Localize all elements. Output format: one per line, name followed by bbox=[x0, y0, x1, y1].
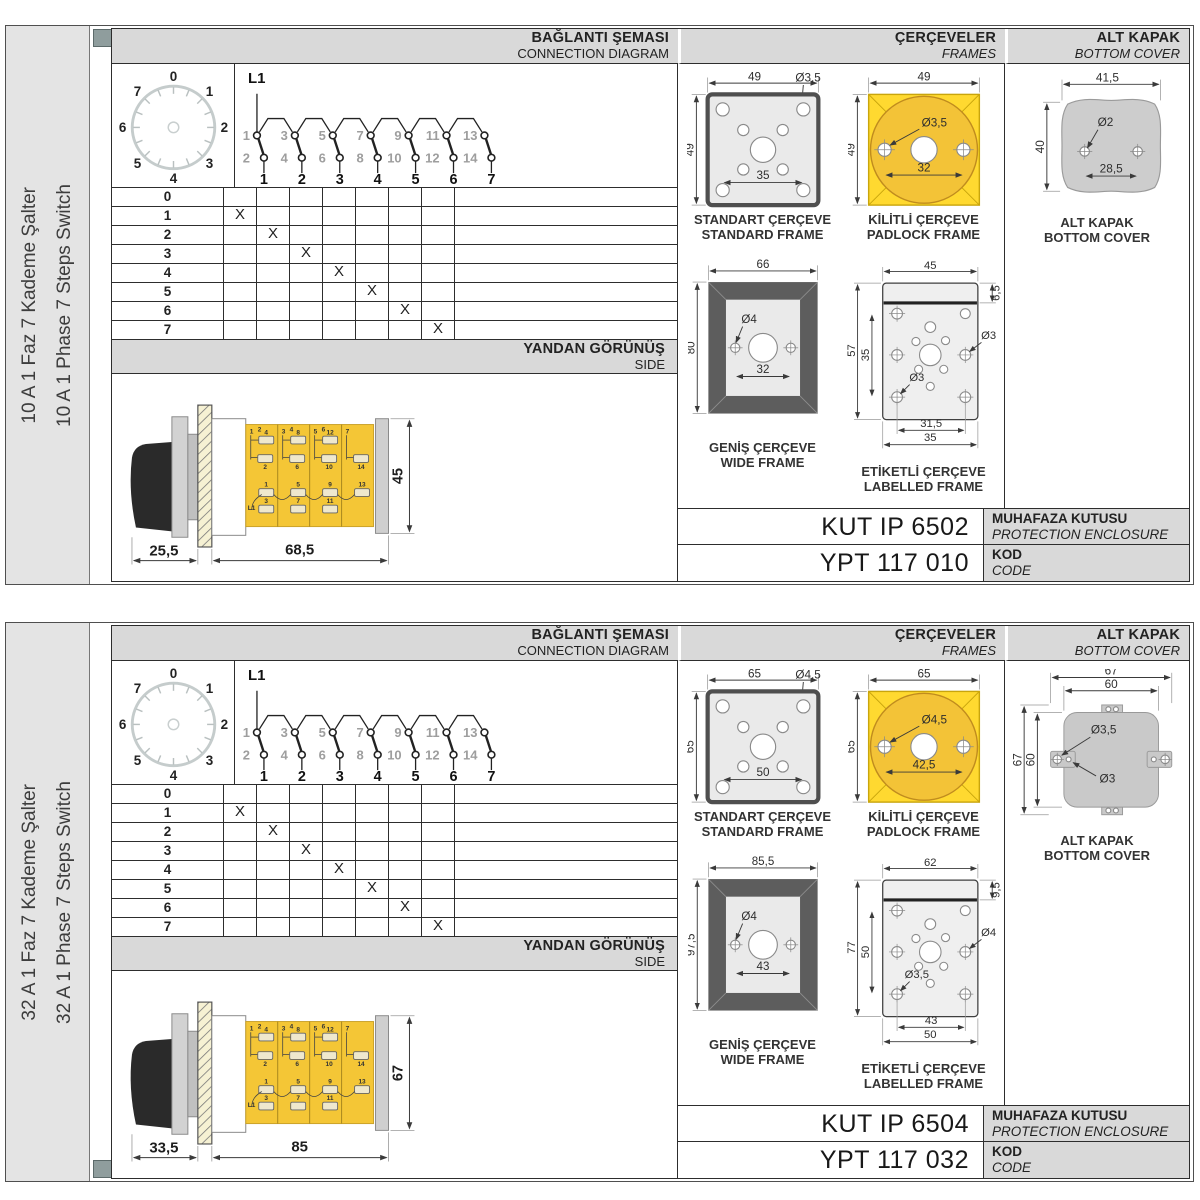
header-title-tr: BAĞLANTI ŞEMASI bbox=[112, 31, 669, 46]
svg-text:7: 7 bbox=[357, 128, 364, 143]
svg-text:3: 3 bbox=[264, 498, 268, 505]
header-title-en: CONNECTION DIAGRAM bbox=[112, 643, 669, 658]
svg-text:5: 5 bbox=[314, 428, 318, 435]
step-mark-cell bbox=[389, 245, 422, 263]
step-mark-cell bbox=[257, 321, 290, 339]
padlock-frame-drawing: 49 49 Ø3,5 32 bbox=[848, 70, 1000, 211]
enclosure-code-row: KUT IP 6502 MUHAFAZA KUTUSU PROTECTION E… bbox=[678, 508, 1189, 544]
svg-text:6,5: 6,5 bbox=[990, 285, 1002, 301]
step-mark-cell: X bbox=[290, 842, 323, 860]
step-table-row: 7X bbox=[112, 321, 677, 340]
frames-header: ÇERÇEVELER FRAMES bbox=[678, 29, 1005, 64]
svg-text:1: 1 bbox=[264, 482, 268, 489]
step-mark-cell bbox=[389, 226, 422, 244]
standard-frame: 65 Ø4,5 65 50 STANDART ÇER bbox=[682, 667, 843, 855]
step-mark-cell bbox=[422, 861, 455, 879]
svg-text:60: 60 bbox=[1024, 753, 1038, 767]
bottom-cover-header: ALT KAPAK BOTTOM COVER bbox=[1005, 29, 1189, 64]
svg-text:1: 1 bbox=[260, 172, 268, 186]
header-title-en: SIDE bbox=[112, 954, 665, 969]
header-title-tr: BAĞLANTI ŞEMASI bbox=[112, 628, 669, 643]
svg-text:2: 2 bbox=[243, 151, 250, 166]
dial-number: 6 bbox=[118, 717, 125, 732]
step-mark-cell bbox=[356, 302, 389, 320]
step-mark-cell bbox=[290, 899, 323, 917]
step-position-label: 6 bbox=[112, 899, 224, 917]
enclosure-code: KUT IP 6504 bbox=[678, 1106, 983, 1142]
step-row-spacer bbox=[455, 918, 677, 936]
labelled-frame: 45 6,5 57 35 bbox=[843, 258, 1004, 494]
step-table-row: 7X bbox=[112, 918, 677, 937]
svg-text:Ø4: Ø4 bbox=[741, 314, 757, 326]
svg-text:4: 4 bbox=[374, 172, 382, 186]
enclosure-code-row: KUT IP 6504 MUHAFAZA KUTUSU PROTECTION E… bbox=[678, 1105, 1189, 1141]
step-mark-cell bbox=[290, 283, 323, 301]
step-mark-cell bbox=[224, 245, 257, 263]
step-mark-cell bbox=[356, 245, 389, 263]
step-mark-cell bbox=[257, 861, 290, 879]
connection-diagram-header: BAĞLANTI ŞEMASI CONNECTION DIAGRAM bbox=[112, 626, 678, 661]
step-mark-cell bbox=[389, 207, 422, 225]
circuit-diagram: L1 1 2 1 bbox=[235, 64, 677, 187]
step-mark-cell bbox=[257, 918, 290, 936]
frames-header: ÇERÇEVELER FRAMES bbox=[678, 626, 1005, 661]
step-row-spacer bbox=[455, 823, 677, 841]
step-position-label: 5 bbox=[112, 283, 224, 301]
step-row-spacer bbox=[455, 226, 677, 244]
side-view-drawing: 1 2 4 2 1 3 3 4 8 6 5 bbox=[112, 374, 677, 581]
header-title-tr: YANDAN GÖRÜNÜŞ bbox=[112, 939, 665, 954]
dial-number: 7 bbox=[133, 84, 140, 99]
step-mark-cell bbox=[422, 264, 455, 282]
side-view-header: YANDAN GÖRÜNÜŞ SIDE bbox=[112, 937, 677, 971]
step-mark-cell bbox=[257, 245, 290, 263]
product-title-turkish: 32 A 1 Faz 7 Kademe Şalter bbox=[19, 784, 41, 1021]
svg-text:9: 9 bbox=[394, 725, 401, 740]
frame-caption: KİLİTLİ ÇERÇEVEPADLOCK FRAME bbox=[843, 809, 1004, 839]
svg-text:8: 8 bbox=[357, 151, 364, 166]
header-title-tr: ÇERÇEVELER bbox=[681, 628, 996, 643]
svg-text:Ø4: Ø4 bbox=[741, 911, 757, 923]
step-row-spacer bbox=[455, 283, 677, 301]
connection-diagram-header: BAĞLANTI ŞEMASI CONNECTION DIAGRAM bbox=[112, 29, 678, 64]
step-row-spacer bbox=[455, 861, 677, 879]
side-view: 1 2 4 2 1 3 3 4 8 6 5 bbox=[112, 971, 677, 1178]
step-mark-cell: X bbox=[356, 880, 389, 898]
svg-text:41,5: 41,5 bbox=[1096, 72, 1119, 84]
svg-text:11: 11 bbox=[426, 725, 440, 740]
labelled-frame-drawing: 45 6,5 57 35 bbox=[845, 258, 1003, 463]
frame-caption: GENİŞ ÇERÇEVEWIDE FRAME bbox=[682, 1037, 843, 1067]
body-depth-dim: 68,5 bbox=[285, 543, 314, 559]
header-title-en: FRAMES bbox=[681, 46, 996, 61]
svg-text:12: 12 bbox=[327, 430, 335, 437]
page-tab-marker bbox=[93, 29, 113, 47]
step-row-spacer bbox=[455, 804, 677, 822]
step-row-spacer bbox=[455, 188, 677, 206]
step-mark-cell bbox=[356, 823, 389, 841]
step-row-spacer bbox=[455, 842, 677, 860]
step-mark-cell bbox=[422, 245, 455, 263]
standard-frame-drawing: 49 Ø3,5 49 35 bbox=[687, 70, 839, 211]
svg-text:42,5: 42,5 bbox=[912, 758, 935, 771]
step-mark-cell bbox=[224, 785, 257, 803]
svg-text:4: 4 bbox=[374, 769, 382, 783]
svg-text:10: 10 bbox=[326, 464, 334, 471]
svg-text:65: 65 bbox=[848, 740, 858, 754]
product-code: YPT 117 010 bbox=[678, 545, 983, 581]
header-title-tr: ALT KAPAK bbox=[1008, 31, 1180, 46]
step-table-row: 5X bbox=[112, 880, 677, 899]
svg-text:35: 35 bbox=[756, 169, 770, 182]
svg-text:8: 8 bbox=[357, 748, 364, 763]
circuit-diagram: L1 1 2 1 bbox=[235, 661, 677, 784]
enclosure-label: MUHAFAZA KUTUSU PROTECTION ENCLOSURE bbox=[983, 1106, 1189, 1142]
standard-frame: 49 Ø3,5 49 35 STANDART ÇER bbox=[682, 70, 843, 258]
step-mark-cell: X bbox=[290, 245, 323, 263]
body-depth-dim: 85 bbox=[291, 1140, 308, 1156]
svg-text:3: 3 bbox=[264, 1095, 268, 1102]
position-dial: 0 1 2 3 4 5 6 7 bbox=[112, 64, 235, 187]
svg-text:7: 7 bbox=[346, 428, 350, 435]
svg-text:67: 67 bbox=[1010, 753, 1024, 766]
step-mark-cell bbox=[323, 804, 356, 822]
product-title-turkish: 10 A 1 Faz 7 Kademe Şalter bbox=[19, 187, 41, 424]
end-plate bbox=[376, 1016, 389, 1131]
svg-text:11: 11 bbox=[327, 498, 334, 505]
step-mark-cell bbox=[356, 264, 389, 282]
svg-text:7: 7 bbox=[357, 725, 364, 740]
svg-text:2: 2 bbox=[263, 1061, 267, 1068]
frame-caption: KİLİTLİ ÇERÇEVEPADLOCK FRAME bbox=[843, 212, 1004, 242]
svg-text:77: 77 bbox=[845, 941, 857, 953]
step-mark-cell bbox=[224, 899, 257, 917]
step-mark-cell bbox=[290, 823, 323, 841]
shaft-section bbox=[212, 1016, 246, 1133]
step-mark-cell bbox=[257, 880, 290, 898]
step-mark-cell bbox=[389, 321, 422, 339]
step-table-row: 0 bbox=[112, 785, 677, 804]
line-label: L1 bbox=[248, 1102, 256, 1109]
svg-text:45: 45 bbox=[924, 260, 936, 272]
step-mark-cell bbox=[224, 861, 257, 879]
header-title-en: CONNECTION DIAGRAM bbox=[112, 46, 669, 61]
step-row-spacer bbox=[455, 321, 677, 339]
mounting-panel-hatched bbox=[198, 1002, 212, 1144]
svg-text:65: 65 bbox=[917, 667, 931, 680]
circuit-switch: 13 14 7 bbox=[463, 725, 495, 783]
bottom-cover-tabs: 67 60 67 60 bbox=[1005, 669, 1189, 832]
labelled-frame-drawing: 62 9,5 77 50 bbox=[845, 855, 1003, 1060]
frame-caption: GENİŞ ÇERÇEVEWIDE FRAME bbox=[682, 440, 843, 470]
svg-text:2: 2 bbox=[258, 426, 262, 433]
padlock-frame: 49 49 Ø3,5 32 bbox=[843, 70, 1004, 258]
side-view-header: YANDAN GÖRÜNÜŞ SIDE bbox=[112, 340, 677, 374]
connection-column: 0 1 2 3 4 5 6 7 L1 bbox=[112, 661, 678, 1178]
svg-text:3: 3 bbox=[282, 1025, 286, 1032]
step-mark-cell bbox=[323, 283, 356, 301]
dial-number: 3 bbox=[205, 156, 212, 171]
dial-number: 2 bbox=[220, 120, 227, 135]
product-panel: 32 A 1 Faz 7 Kademe Şalter 32 A 1 Phase … bbox=[5, 622, 1194, 1182]
step-mark-cell bbox=[257, 302, 290, 320]
enclosure-code: KUT IP 6502 bbox=[678, 509, 983, 545]
step-mark-cell bbox=[356, 918, 389, 936]
step-row-spacer bbox=[455, 302, 677, 320]
step-mark-cell: X bbox=[323, 861, 356, 879]
step-position-label: 3 bbox=[112, 842, 224, 860]
svg-text:1: 1 bbox=[260, 769, 268, 783]
step-mark-cell bbox=[257, 804, 290, 822]
circuit-switch: 13 14 7 bbox=[463, 128, 495, 186]
panel-main: BAĞLANTI ŞEMASI CONNECTION DIAGRAM ÇERÇE… bbox=[111, 625, 1190, 1179]
switch-knob bbox=[131, 442, 172, 531]
svg-text:2: 2 bbox=[243, 748, 250, 763]
header-title-en: SIDE bbox=[112, 357, 665, 372]
step-mark-cell bbox=[323, 188, 356, 206]
step-mark-cell bbox=[290, 207, 323, 225]
svg-text:10: 10 bbox=[326, 1061, 334, 1068]
step-mark-cell bbox=[290, 861, 323, 879]
dial-number: 5 bbox=[133, 156, 141, 171]
line-label: L1 bbox=[248, 70, 265, 87]
header-title-tr: YANDAN GÖRÜNÜŞ bbox=[112, 342, 665, 357]
header-title-en: FRAMES bbox=[681, 643, 996, 658]
svg-text:62: 62 bbox=[924, 857, 936, 869]
step-mark-cell bbox=[257, 842, 290, 860]
dial-number: 2 bbox=[220, 717, 227, 732]
step-mark-cell bbox=[290, 880, 323, 898]
dial-number: 3 bbox=[205, 753, 212, 768]
svg-text:7: 7 bbox=[296, 498, 300, 505]
step-mark-cell bbox=[323, 785, 356, 803]
step-mark-cell bbox=[290, 918, 323, 936]
step-mark-cell bbox=[323, 321, 356, 339]
dial-number: 1 bbox=[205, 84, 213, 99]
step-mark-cell bbox=[422, 283, 455, 301]
dial-drawing: 0 1 2 3 4 5 6 7 bbox=[114, 663, 233, 782]
step-mark-cell bbox=[422, 226, 455, 244]
labelled-frame: 62 9,5 77 50 bbox=[843, 855, 1004, 1091]
step-mark-cell bbox=[389, 188, 422, 206]
svg-text:43: 43 bbox=[924, 1015, 936, 1027]
svg-text:Ø3,5: Ø3,5 bbox=[1091, 722, 1117, 736]
step-position-label: 4 bbox=[112, 861, 224, 879]
svg-text:2: 2 bbox=[298, 172, 306, 186]
step-mark-cell bbox=[422, 899, 455, 917]
dial-number: 0 bbox=[169, 666, 176, 681]
dial-number: 4 bbox=[169, 171, 177, 185]
side-view: 1 2 4 2 1 3 3 4 8 6 5 bbox=[112, 374, 677, 581]
product-code-row: YPT 117 032 KOD CODE bbox=[678, 1141, 1189, 1178]
bottom-cover-column: 67 60 67 60 bbox=[1005, 661, 1189, 1105]
page-tab-marker bbox=[93, 1160, 113, 1178]
product-panel: 10 A 1 Faz 7 Kademe Şalter 10 A 1 Phase … bbox=[5, 25, 1194, 585]
svg-text:5: 5 bbox=[296, 1079, 300, 1086]
svg-text:6: 6 bbox=[449, 172, 457, 186]
step-mark-cell bbox=[422, 207, 455, 225]
step-mark-cell bbox=[323, 918, 356, 936]
svg-text:6: 6 bbox=[319, 748, 326, 763]
svg-text:49: 49 bbox=[748, 70, 761, 83]
step-mark-cell: X bbox=[224, 207, 257, 225]
step-mark-cell bbox=[290, 302, 323, 320]
svg-text:6: 6 bbox=[449, 769, 457, 783]
step-table-row: 1X bbox=[112, 207, 677, 226]
step-mark-cell bbox=[224, 226, 257, 244]
front-depth-dim: 25,5 bbox=[149, 544, 178, 560]
bottom-cover-column: 41,5 40 Ø2 28,5 ALT KAPAKBOTTOM COVER bbox=[1005, 64, 1189, 508]
step-mark-cell bbox=[422, 880, 455, 898]
header-title-tr: ALT KAPAK bbox=[1008, 628, 1180, 643]
svg-text:11: 11 bbox=[327, 1095, 334, 1102]
collar-plate bbox=[172, 1014, 188, 1135]
svg-text:Ø4,5: Ø4,5 bbox=[795, 668, 821, 681]
step-mark-cell bbox=[389, 283, 422, 301]
svg-text:66: 66 bbox=[756, 259, 769, 271]
step-table-row: 0 bbox=[112, 188, 677, 207]
step-mark-cell bbox=[389, 861, 422, 879]
step-row-spacer bbox=[455, 245, 677, 263]
step-mark-cell bbox=[323, 899, 356, 917]
svg-text:Ø4: Ø4 bbox=[981, 927, 996, 939]
collar-step bbox=[188, 434, 198, 520]
step-mark-cell bbox=[323, 207, 356, 225]
code-label: KOD CODE bbox=[983, 1142, 1189, 1178]
circuit-drawing: L1 1 2 1 bbox=[235, 64, 677, 186]
cover-caption: ALT KAPAKBOTTOM COVER bbox=[1005, 833, 1189, 863]
frame-caption: STANDART ÇERÇEVESTANDARD FRAME bbox=[682, 212, 843, 242]
product-code: YPT 117 032 bbox=[678, 1142, 983, 1178]
step-mark-cell bbox=[224, 823, 257, 841]
side-view-drawing: 1 2 4 2 1 3 3 4 8 6 5 bbox=[112, 971, 677, 1178]
connection-column: 0 1 2 3 4 5 6 7 L1 bbox=[112, 64, 678, 581]
step-mark-cell: X bbox=[422, 321, 455, 339]
bottom-cover-header: ALT KAPAK BOTTOM COVER bbox=[1005, 626, 1189, 661]
frame-caption: STANDART ÇERÇEVESTANDARD FRAME bbox=[682, 809, 843, 839]
step-mark-cell bbox=[224, 321, 257, 339]
svg-text:13: 13 bbox=[358, 482, 366, 489]
step-mark-cell bbox=[323, 880, 356, 898]
mounting-panel-hatched bbox=[198, 405, 212, 547]
step-contact-table: 01X2X3X4X5X6X7X bbox=[112, 784, 677, 937]
enclosure-label: MUHAFAZA KUTUSU PROTECTION ENCLOSURE bbox=[983, 509, 1189, 545]
sidebar: 32 A 1 Faz 7 Kademe Şalter 32 A 1 Phase … bbox=[6, 623, 90, 1181]
step-position-label: 5 bbox=[112, 880, 224, 898]
padlock-frame: 65 65 Ø4,5 42,5 bbox=[843, 667, 1004, 855]
svg-text:5: 5 bbox=[314, 1025, 318, 1032]
svg-text:80: 80 bbox=[688, 341, 697, 354]
svg-text:57: 57 bbox=[845, 344, 857, 356]
step-mark-cell bbox=[290, 785, 323, 803]
body-height-dim: 67 bbox=[390, 1065, 406, 1081]
step-mark-cell bbox=[389, 264, 422, 282]
svg-text:Ø2: Ø2 bbox=[1098, 115, 1114, 129]
bottom-cover-blob: 41,5 40 Ø2 28,5 bbox=[1005, 72, 1189, 214]
svg-text:Ø4,5: Ø4,5 bbox=[921, 713, 947, 726]
step-mark-cell bbox=[356, 899, 389, 917]
product-title-english: 10 A 1 Phase 7 Steps Switch bbox=[54, 184, 76, 427]
svg-text:40: 40 bbox=[1033, 140, 1047, 154]
padlock-frame-drawing: 65 65 Ø4,5 42,5 bbox=[848, 667, 1000, 808]
step-mark-cell bbox=[422, 823, 455, 841]
svg-text:2: 2 bbox=[298, 769, 306, 783]
switch-knob bbox=[131, 1039, 172, 1128]
step-mark-cell bbox=[257, 899, 290, 917]
frames-column: 49 Ø3,5 49 35 STANDART ÇER bbox=[678, 64, 1005, 508]
svg-text:14: 14 bbox=[357, 464, 365, 471]
step-mark-cell bbox=[356, 861, 389, 879]
step-mark-cell bbox=[356, 321, 389, 339]
step-contact-table: 01X2X3X4X5X6X7X bbox=[112, 187, 677, 340]
svg-text:31,5: 31,5 bbox=[920, 418, 942, 430]
svg-text:28,5: 28,5 bbox=[1100, 161, 1123, 175]
step-row-spacer bbox=[455, 207, 677, 225]
svg-text:7: 7 bbox=[296, 1095, 300, 1102]
sidebar: 10 A 1 Faz 7 Kademe Şalter 10 A 1 Phase … bbox=[6, 26, 90, 584]
step-mark-cell bbox=[389, 918, 422, 936]
step-position-label: 6 bbox=[112, 302, 224, 320]
frame-caption: ETİKETLİ ÇERÇEVELABELLED FRAME bbox=[843, 464, 1004, 494]
frames-column: 65 Ø4,5 65 50 STANDART ÇER bbox=[678, 661, 1005, 1105]
step-table-row: 4X bbox=[112, 861, 677, 880]
dial-number: 6 bbox=[118, 120, 125, 135]
step-row-spacer bbox=[455, 785, 677, 803]
step-position-label: 7 bbox=[112, 321, 224, 339]
step-mark-cell bbox=[389, 880, 422, 898]
svg-text:3: 3 bbox=[281, 725, 288, 740]
dial-number: 0 bbox=[169, 69, 176, 84]
svg-text:35: 35 bbox=[860, 349, 872, 361]
svg-text:10: 10 bbox=[387, 748, 401, 763]
svg-text:9: 9 bbox=[328, 482, 332, 489]
step-mark-cell bbox=[422, 785, 455, 803]
svg-text:9,5: 9,5 bbox=[990, 882, 1002, 898]
svg-text:Ø3: Ø3 bbox=[1100, 772, 1116, 786]
svg-text:4: 4 bbox=[264, 1027, 268, 1034]
dial-number: 7 bbox=[133, 681, 140, 696]
svg-text:1: 1 bbox=[243, 725, 250, 740]
step-mark-cell bbox=[257, 207, 290, 225]
step-mark-cell bbox=[257, 264, 290, 282]
svg-text:3: 3 bbox=[336, 172, 344, 186]
svg-text:7: 7 bbox=[487, 769, 495, 783]
svg-text:4: 4 bbox=[281, 748, 289, 763]
svg-text:11: 11 bbox=[426, 128, 440, 143]
svg-text:50: 50 bbox=[860, 946, 872, 958]
step-mark-cell bbox=[224, 302, 257, 320]
svg-text:6: 6 bbox=[295, 1061, 299, 1068]
step-mark-cell bbox=[356, 226, 389, 244]
code-label: KOD CODE bbox=[983, 545, 1189, 581]
step-row-spacer bbox=[455, 264, 677, 282]
svg-text:1: 1 bbox=[250, 428, 254, 435]
frame-caption: ETİKETLİ ÇERÇEVELABELLED FRAME bbox=[843, 1061, 1004, 1091]
svg-text:85,5: 85,5 bbox=[751, 856, 774, 868]
step-table-row: 2X bbox=[112, 226, 677, 245]
step-mark-cell: X bbox=[224, 804, 257, 822]
step-mark-cell bbox=[224, 880, 257, 898]
svg-text:5: 5 bbox=[412, 769, 420, 783]
dial-drawing: 0 1 2 3 4 5 6 7 bbox=[114, 66, 233, 185]
collar-step bbox=[188, 1031, 198, 1117]
step-mark-cell bbox=[422, 842, 455, 860]
line-label: L1 bbox=[248, 505, 256, 512]
step-position-label: 7 bbox=[112, 918, 224, 936]
cover-caption: ALT KAPAKBOTTOM COVER bbox=[1005, 215, 1189, 245]
svg-text:5: 5 bbox=[412, 172, 420, 186]
svg-text:12: 12 bbox=[327, 1027, 335, 1034]
